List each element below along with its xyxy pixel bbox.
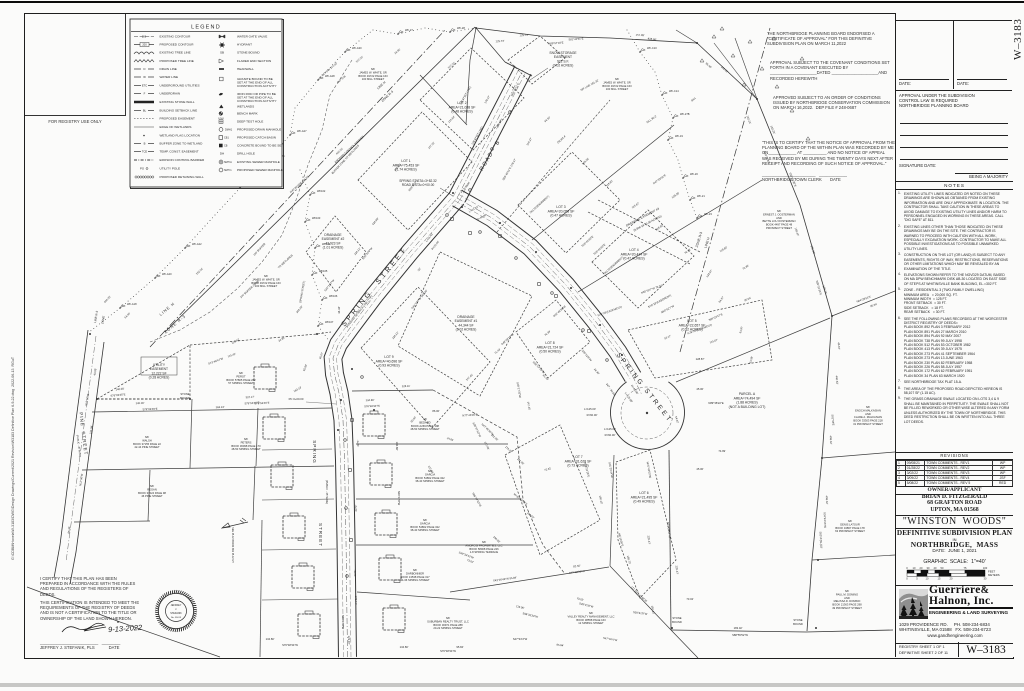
- svg-text:132.04': 132.04': [88, 425, 93, 435]
- svg-text:S03°43'03"W: S03°43'03"W: [823, 512, 828, 528]
- svg-text:5: 5: [916, 576, 918, 580]
- svg-text:CB1: CB1: [224, 137, 229, 140]
- svg-text:S05°45'33"E: S05°45'33"E: [592, 243, 606, 256]
- svg-text:DRAIN LINE: DRAIN LINE: [160, 67, 177, 71]
- svg-text:163.13': 163.13': [216, 405, 225, 409]
- svg-text:N/FJAMES W. WHITE, SRBOOK 4972: N/FJAMES W. WHITE, SRBOOK 49722 PAGE 163…: [358, 67, 388, 81]
- svg-text:0: 0: [906, 566, 908, 570]
- svg-text:218.12': 218.12': [353, 246, 362, 256]
- svg-text:30.00': 30.00': [409, 415, 417, 423]
- svg-text:STONE BOUND: STONE BOUND: [237, 51, 260, 55]
- svg-text:168.73': 168.73': [626, 555, 632, 565]
- svg-text:LINE H: LINE H: [158, 301, 176, 317]
- svg-text:DRAINAGEEASEMENT #243,923 SF(1: DRAINAGEEASEMENT #243,923 SF(1.01 ACRES): [322, 233, 345, 250]
- svg-text:107.02': 107.02': [427, 140, 436, 149]
- svg-text:53.17': 53.17': [663, 334, 672, 341]
- svg-text:EROSION CONTROL BARRIER: EROSION CONTROL BARRIER: [160, 158, 206, 162]
- svg-text:N/FDARBONNIERBOOK 13538 PAGE 3: N/FDARBONNIERBOOK 13538 PAGE 31734-36 SP…: [400, 568, 430, 582]
- svg-text:EXISTING CONTOUR: EXISTING CONTOUR: [160, 35, 192, 39]
- svg-text:125.73': 125.73': [519, 33, 528, 38]
- svg-text:S76°48'34"W: S76°48'34"W: [282, 643, 298, 647]
- svg-text:WF-23: WF-23: [704, 212, 712, 216]
- svg-text:WETLANDS: WETLANDS: [237, 105, 254, 109]
- svg-text:WF105: WF105: [319, 269, 328, 273]
- svg-text:55.00': 55.00': [302, 363, 308, 372]
- svg-text:100' BUFFER ZONE: 100' BUFFER ZONE: [239, 279, 260, 299]
- svg-text:S01°58'E: S01°58'E: [831, 414, 836, 426]
- svg-text:54.97': 54.97': [738, 325, 744, 333]
- svg-text:50: 50: [941, 566, 944, 570]
- svg-text:N47°29'34"E: N47°29'34"E: [652, 173, 667, 185]
- svg-text:400.00': 400.00': [103, 294, 112, 303]
- svg-text:D: D: [144, 67, 146, 71]
- svg-text:DH: DH: [220, 152, 224, 156]
- svg-text:45.00': 45.00': [696, 467, 704, 471]
- svg-text:SB: SB: [220, 51, 224, 55]
- svg-text:S05°40'11"E 178.47': S05°40'11"E 178.47': [501, 158, 517, 182]
- svg-text:ROAD 'B': ROAD 'B': [479, 137, 504, 172]
- svg-text:109.28': 109.28': [581, 157, 591, 166]
- svg-text:73.02': 73.02': [576, 596, 584, 602]
- svg-text:134.80': 134.80': [266, 637, 275, 641]
- svg-text:S89°23'57"E: S89°23'57"E: [708, 312, 724, 322]
- svg-text:R=60.00': R=60.00': [605, 433, 616, 437]
- svg-text:-2+00: -2+00: [354, 505, 358, 512]
- svg-text:S77°48'00"W: S77°48'00"W: [569, 569, 586, 575]
- svg-text:S47°34'4"W: S47°34'4"W: [603, 636, 618, 643]
- svg-text:S10°22'8"E: S10°22'8"E: [763, 151, 771, 165]
- svg-text:34.34': 34.34': [337, 306, 341, 314]
- svg-text:N65°52'7"W: N65°52'7"W: [660, 304, 675, 315]
- svg-text:S09°17'33"W: S09°17'33"W: [532, 360, 546, 375]
- svg-text:147.45': 147.45': [465, 373, 475, 382]
- svg-text:N/FREGANBOOK 37024 PAGE 9846 P: N/FREGANBOOK 37024 PAGE 9846 PINE STREET: [138, 484, 166, 498]
- svg-text:96.48': 96.48': [67, 526, 72, 534]
- svg-text:S09°17'33"W: S09°17'33"W: [516, 382, 523, 399]
- svg-text:S00°24'9"W: S00°24'9"W: [341, 615, 345, 630]
- svg-text:BENCH MARK: BENCH MARK: [237, 112, 259, 116]
- svg-text:S03°A'(SL)03': S03°A'(SL)03': [819, 531, 824, 548]
- svg-text:WF-A22: WF-A22: [192, 242, 202, 246]
- svg-text:N89°57'18"E: N89°57'18"E: [548, 40, 564, 45]
- svg-text:WF-C14: WF-C14: [669, 89, 679, 93]
- svg-text:137.48': 137.48': [483, 441, 491, 451]
- svg-text:WF-A27: WF-A27: [297, 129, 307, 133]
- svg-text:N/F LINE 181.32': N/F LINE 181.32': [580, 78, 600, 92]
- svg-text:160.10': 160.10': [598, 495, 604, 505]
- svg-text:128.11': 128.11': [402, 384, 411, 388]
- svg-text:PROPOSED EASEMENT: PROPOSED EASEMENT: [160, 117, 196, 121]
- svg-text:N/FSUBURBAN REALTY TRUST, LLCB: N/FSUBURBAN REALTY TRUST, LLCBOOK 30971 …: [427, 616, 469, 630]
- svg-text:102.23': 102.23': [746, 115, 753, 125]
- svg-text:WF-21: WF-21: [697, 194, 705, 198]
- svg-text:71.43': 71.43': [493, 347, 501, 355]
- svg-text:231.96': 231.96': [810, 245, 817, 255]
- svg-text:S05°16'33"E: S05°16'33"E: [815, 280, 823, 296]
- svg-text:WF-A28: WF-A28: [325, 74, 335, 78]
- svg-text:WF-27: WF-27: [405, 28, 413, 32]
- svg-text:408.32': 408.32': [825, 495, 829, 504]
- svg-text:24.81': 24.81': [277, 335, 286, 342]
- svg-text:JEFFREY: JEFFREY: [171, 604, 182, 607]
- svg-text:30: 30: [984, 576, 987, 580]
- svg-text:M=5°43'50"W: M=5°43'50"W: [646, 461, 653, 478]
- svg-text:100.88': 100.88': [395, 442, 399, 451]
- svg-text:WETLAND FLAG LOCATION: WETLAND FLAG LOCATION: [160, 134, 201, 138]
- svg-text:S01°20'44"W: S01°20'44"W: [666, 522, 672, 539]
- svg-text:S73°48'47"W: S73°48'47"W: [208, 356, 225, 365]
- svg-text:94.97': 94.97': [717, 295, 725, 304]
- svg-text:S78°18'(EASEMENT): S78°18'(EASEMENT): [597, 305, 623, 318]
- svg-text:L=125.00': L=125.00': [584, 407, 596, 411]
- svg-text:STREET: STREET: [318, 523, 323, 547]
- svg-text:SPRING STREET: SPRING STREET: [341, 246, 410, 328]
- svg-text:200: 200: [142, 43, 147, 47]
- svg-text:181.96': 181.96': [516, 457, 525, 466]
- svg-text:UNDERGROUND UTILITIES: UNDERGROUND UTILITIES: [160, 84, 200, 88]
- svg-text:N/FGARCIABOOK 54862 PAGE 32238: N/FGARCIABOOK 54862 PAGE 32238-40 SPRING…: [410, 518, 440, 532]
- svg-text:163.13': 163.13': [293, 385, 303, 393]
- svg-text:S88°55'52"W: S88°55'52"W: [732, 633, 748, 637]
- svg-text:LOT 9AREA=40,696 SF(0.93 ACRES: LOT 9AREA=40,696 SF(0.93 ACRES): [376, 355, 403, 368]
- svg-text:347' - 36.06': 347' - 36.06': [605, 382, 617, 397]
- svg-text:73.02': 73.02': [686, 597, 694, 601]
- svg-text:N/FENOCH MALKASIANANDCLARE A.: N/FENOCH MALKASIANANDCLARE A. MALKASIANB…: [853, 405, 883, 426]
- svg-text:10: 10: [913, 566, 916, 570]
- svg-text:FLARED END SECTION: FLARED END SECTION: [237, 59, 271, 63]
- svg-text:109.28': 109.28': [671, 191, 681, 200]
- svg-text:DRAINAGEEASEMENT #144,344 SF(1: DRAINAGEEASEMENT #144,344 SF(1.02 ACRES): [455, 315, 478, 332]
- svg-text:WATER LINE: WATER LINE: [160, 75, 179, 79]
- svg-text:46.67': 46.67': [837, 342, 842, 350]
- svg-text:DTH1: DTH1: [218, 118, 224, 120]
- svg-text:S39°41'8"W: S39°41'8"W: [579, 601, 594, 608]
- svg-text:N84°28'53"E: N84°28'53"E: [856, 295, 872, 304]
- svg-text:S00°24'9"W: S00°24'9"W: [397, 491, 401, 506]
- svg-text:BUFFER ZONE TO WETLANDS: BUFFER ZONE TO WETLANDS: [330, 144, 360, 175]
- svg-text:WF106: WF106: [329, 294, 338, 298]
- svg-text:S18°50'W: S18°50'W: [84, 393, 90, 406]
- svg-text:WF-28: WF-28: [457, 26, 465, 30]
- svg-text:UTILITYEASEMENT12,222 SF(0.28: UTILITYEASEMENT12,222 SF(0.28 ACRES): [149, 363, 170, 380]
- svg-text:SILL: SILL: [690, 96, 697, 103]
- svg-text:10: 10: [926, 576, 929, 580]
- svg-text:J.: J.: [175, 608, 177, 611]
- svg-text:-1+00: -1+00: [356, 440, 360, 447]
- svg-text:418.98': 418.98': [371, 216, 380, 226]
- svg-text:SPRING STREET: SPRING STREET: [615, 352, 674, 425]
- svg-text:EROSION CONTROL BARRIER: EROSION CONTROL BARRIER: [334, 135, 365, 164]
- svg-text:PROPOSED SEWER MANHOLE: PROPOSED SEWER MANHOLE: [237, 168, 283, 172]
- svg-text:S47°34'4"W: S47°34'4"W: [513, 637, 528, 641]
- svg-text:BUILDING SETBACK LINE: BUILDING SETBACK LINE: [160, 109, 198, 113]
- svg-text:120.84': 120.84': [447, 114, 456, 123]
- svg-text:30': 30': [417, 266, 423, 272]
- svg-text:40: 40: [934, 566, 937, 570]
- svg-text:307.17': 307.17': [245, 395, 254, 400]
- svg-text:20: 20: [950, 576, 953, 580]
- svg-text:HEADWALL: HEADWALL: [237, 67, 254, 71]
- svg-text:128.87'(ST LINE): 128.87'(ST LINE): [470, 125, 484, 145]
- svg-text:110.27': 110.27': [495, 118, 503, 128]
- svg-text:119.96': 119.96': [516, 604, 526, 610]
- svg-text:(PUBLIC - 45' WIDE): (PUBLIC - 45' WIDE): [325, 480, 329, 504]
- svg-text:115.67': 115.67': [709, 338, 719, 345]
- svg-text:N/FDENIS LATOURBOOK 34867 PAGE: N/FDENIS LATOURBOOK 34867 PAGE 17863 PRO…: [835, 519, 865, 533]
- svg-text:S79°03'46"E: S79°03'46"E: [110, 392, 126, 398]
- svg-text:BOUND: BOUND: [793, 622, 803, 626]
- svg-text:328°52'8"W: 328°52'8"W: [581, 349, 593, 363]
- svg-text:132.04': 132.04': [195, 267, 205, 276]
- svg-text:LINE H: LINE H: [704, 236, 711, 248]
- svg-text:ZONE R-3: ZONE R-3: [695, 231, 703, 247]
- svg-text:218.12': 218.12': [391, 330, 400, 340]
- svg-text:LOT 8AREA=21,724 SF(0.50 ACRES: LOT 8AREA=21,724 SF(0.50 ACRES): [537, 341, 564, 354]
- svg-text:SPRING: SPRING: [312, 440, 317, 464]
- svg-text:183.02': 183.02': [734, 626, 743, 630]
- svg-text:DMH1: DMH1: [225, 129, 233, 132]
- svg-text:176.44': 176.44': [354, 596, 358, 605]
- svg-text:34.34': 34.34': [593, 367, 601, 375]
- svg-text:TEMP. CONST. EASEMENT: TEMP. CONST. EASEMENT: [160, 150, 199, 154]
- svg-text:N/FWALSHBOOK 37155 PAGE 2242-4: N/FWALSHBOOK 37155 PAGE 2242-44 PINE STR…: [133, 435, 161, 449]
- svg-text:436.86': 436.86': [648, 36, 658, 41]
- svg-text:N89°38'22"E: N89°38'22"E: [708, 401, 723, 405]
- svg-text:BOUND: BOUND: [180, 396, 190, 400]
- svg-text:SMH A: SMH A: [224, 161, 232, 164]
- svg-text:N12°30'W: N12°30'W: [78, 473, 84, 486]
- svg-text:R=60.00': R=60.00': [587, 413, 598, 417]
- svg-text:S43°26'44"W 95.84': S43°26'44"W 95.84': [493, 575, 518, 582]
- svg-text:UNDERDRAIN: UNDERDRAIN: [160, 92, 181, 96]
- svg-text:S48°28'18"W: S48°28'18"W: [500, 332, 515, 346]
- svg-text:WF-19: WF-19: [675, 134, 683, 138]
- svg-text:95.94': 95.94': [870, 302, 879, 308]
- svg-text:LOT 4AREA=20,414 SF(0.47 ACRES: LOT 4AREA=20,414 SF(0.47 ACRES): [621, 248, 648, 261]
- svg-text:WF-A30: WF-A30: [352, 46, 362, 50]
- svg-text:S79°53'46"E: S79°53'46"E: [254, 401, 269, 406]
- svg-text:95.04': 95.04': [743, 296, 752, 303]
- svg-text:N47°42'48"W: N47°42'48"W: [633, 590, 648, 604]
- svg-text:220.47': 220.47': [674, 565, 679, 575]
- svg-text:160.10': 160.10': [650, 605, 656, 615]
- svg-text:PC 0+00.00: PC 0+00.00: [289, 397, 304, 401]
- svg-text:L=21.62': L=21.62': [468, 205, 479, 214]
- svg-text:PROPOSED DRAIN MANHOLE: PROPOSED DRAIN MANHOLE: [237, 128, 281, 132]
- svg-text:157.09': 157.09': [636, 33, 645, 37]
- svg-text:115.42': 115.42': [231, 337, 241, 345]
- svg-text:73.02': 73.02': [466, 558, 475, 564]
- svg-text:SPRING ST STA=3+82.32ROAD B ST: SPRING ST STA=3+82.32ROAD B STA=0+00.00: [399, 179, 437, 187]
- svg-text:-3+00: -3+00: [353, 570, 357, 577]
- svg-text:100: 100: [983, 566, 988, 570]
- svg-text:WF-20: WF-20: [690, 172, 698, 176]
- svg-text:SMH 1: SMH 1: [224, 169, 232, 172]
- svg-text:STEFANIK: STEFANIK: [170, 612, 182, 615]
- svg-text:206: 206: [142, 35, 147, 39]
- svg-text:W: W: [143, 75, 146, 79]
- svg-text:46.67': 46.67': [318, 351, 324, 360]
- svg-text:UTILITY POLE: UTILITY POLE: [160, 167, 181, 171]
- svg-text:408.32': 408.32': [829, 435, 833, 444]
- svg-text:S78°48'34"W: S78°48'34"W: [364, 404, 380, 409]
- svg-text:261.55'(EASEMENT): 261.55'(EASEMENT): [603, 255, 625, 275]
- svg-text:S41°23'7"W: S41°23'7"W: [323, 278, 335, 292]
- svg-text:0: 0: [906, 576, 908, 580]
- svg-text:86.00': 86.00': [432, 409, 440, 413]
- svg-text:24.81': 24.81': [446, 436, 455, 442]
- svg-text:N77°46'00"E: N77°46'00"E: [462, 412, 478, 417]
- svg-text:(SL)63.4': (SL)63.4': [556, 134, 567, 145]
- svg-text:118.80': 118.80': [655, 223, 665, 231]
- svg-text:95.84': 95.84': [456, 645, 464, 649]
- svg-text:WF107: WF107: [325, 320, 334, 324]
- svg-text:No. 55013: No. 55013: [171, 617, 182, 619]
- svg-text:SEE PLAN BOOK 891 PLAN 27: SEE PLAN BOOK 891 PLAN 27: [231, 527, 234, 563]
- svg-text:107.00': 107.00': [355, 55, 365, 64]
- svg-text:N/FPAUL M. DOMINOANDMELISSA D.: N/FPAUL M. DOMINOANDMELISSA D. DOMINOBOO…: [832, 589, 862, 610]
- svg-text:STONE: STONE: [793, 618, 802, 622]
- svg-text:125.73': 125.73': [495, 39, 504, 44]
- svg-text:440.63': 440.63': [835, 375, 840, 385]
- svg-text:ZONE R-3: ZONE R-3: [163, 313, 187, 334]
- svg-text:BL: BL: [143, 109, 147, 113]
- svg-text:LINE R-3: LINE R-3: [93, 310, 99, 323]
- svg-text:24.81': 24.81': [393, 47, 401, 55]
- svg-text:PT 3+55.67: PT 3+55.67: [459, 180, 471, 193]
- svg-text:N6°10'26"E: N6°10'26"E: [617, 533, 624, 548]
- svg-text:110.27': 110.27': [525, 136, 533, 146]
- svg-text:30: 30: [927, 566, 930, 570]
- svg-text:54.97': 54.97': [674, 416, 680, 424]
- svg-text:WF-C10: WF-C10: [647, 46, 657, 50]
- svg-text:L=125.00': L=125.00': [604, 427, 616, 431]
- svg-text:TO WETLANDS: TO WETLANDS: [277, 253, 294, 269]
- svg-text:N/FJAMES W. WHITE, SRBOOK 4972: N/FJAMES W. WHITE, SRBOOK 49722 PAGE 163…: [602, 77, 632, 91]
- svg-text:CONCRETE BOUND TO BE SET: CONCRETE BOUND TO BE SET: [237, 144, 283, 148]
- svg-text:WF-A20: WF-A20: [162, 272, 172, 276]
- svg-text:76.39': 76.39': [543, 329, 551, 337]
- svg-text:WF-A18: WF-A18: [127, 302, 137, 306]
- svg-text:(SPRING STREET): (SPRING STREET): [298, 280, 306, 303]
- svg-text:133.07': 133.07': [705, 268, 714, 278]
- svg-text:EXISTING STONE WALL: EXISTING STONE WALL: [160, 100, 195, 104]
- svg-text:147.45': 147.45': [526, 401, 532, 411]
- svg-text:ZONE: ZONE: [100, 315, 105, 324]
- svg-text:72.61': 72.61': [544, 466, 553, 472]
- svg-text:129.24': 129.24': [822, 285, 829, 295]
- svg-text:SNOW STORAGEEASEMENT932 S.F.(0: SNOW STORAGEEASEMENT932 S.F.(0.02 ACRES): [549, 51, 577, 68]
- svg-text:100.03': 100.03': [492, 535, 501, 544]
- svg-text:HYDRANT: HYDRANT: [237, 43, 252, 47]
- svg-text:S76°48'34"W: S76°48'34"W: [440, 649, 456, 653]
- svg-text:96.48': 96.48': [705, 61, 713, 69]
- svg-text:PROPOSED RETAINING WALL: PROPOSED RETAINING WALL: [160, 175, 204, 179]
- svg-text:S39°41'8"W: S39°41'8"W: [633, 610, 648, 616]
- svg-text:118.80': 118.80': [719, 245, 729, 253]
- svg-text:BOUND: BOUND: [672, 620, 682, 624]
- svg-text:N16°10'26"E: N16°10'26"E: [583, 462, 591, 478]
- svg-text:134.80': 134.80': [366, 398, 375, 402]
- svg-text:123.07': 123.07': [347, 636, 351, 645]
- svg-text:74.99': 74.99': [718, 449, 726, 453]
- svg-text:148.42': 148.42': [794, 227, 801, 237]
- svg-text:L=125.00': L=125.00': [624, 391, 634, 403]
- svg-text:134.80': 134.80': [400, 645, 409, 649]
- svg-text:PARCEL AAREA=74,494 SF(1.88 AC: PARCEL AAREA=74,494 SF(1.88 ACRES)(NOT A…: [729, 392, 766, 409]
- svg-text:54.00': 54.00': [123, 311, 131, 319]
- svg-text:76.39': 76.39': [683, 247, 692, 255]
- svg-text:BUFFER ZONE TO WETLAND: BUFFER ZONE TO WETLAND: [160, 142, 204, 146]
- svg-text:PROPOSED CONTOUR: PROPOSED CONTOUR: [160, 43, 195, 47]
- svg-text:163.26': 163.26': [295, 304, 304, 314]
- svg-text:LOT 6AREA=21,495 SF(0.49 ACRES: LOT 6AREA=21,495 SF(0.49 ACRES): [631, 491, 658, 504]
- svg-text:S41°23'7"W 163.26': S41°23'7"W 163.26': [410, 288, 428, 309]
- svg-text:DRILL HOLE: DRILL HOLE: [237, 152, 255, 156]
- svg-text:B: B: [144, 142, 146, 146]
- svg-text:WF-27B: WF-27B: [680, 112, 690, 116]
- svg-text:METERS: METERS: [988, 573, 1000, 577]
- svg-text:CONSTRUCTION ACTIVITY: CONSTRUCTION ACTIVITY: [237, 84, 277, 88]
- svg-text:CONSTRUCTION ACTIVITY: CONSTRUCTION ACTIVITY: [237, 99, 277, 103]
- svg-text:181.96': 181.96': [490, 433, 499, 442]
- svg-text:N/FVALLEY REALTY MANAGEMENT, L: N/FVALLEY REALTY MANAGEMENT, LLCBOOK 385…: [568, 611, 615, 625]
- svg-text:DEEP TEST HOLE: DEEP TEST HOLE: [237, 120, 263, 124]
- svg-text:STONE: STONE: [672, 616, 681, 620]
- svg-text:220.47': 220.47': [646, 535, 651, 545]
- svg-text:N45°36'03"E 116.96': N45°36'03"E 116.96': [289, 174, 310, 194]
- svg-text:S48°32'20"W: S48°32'20"W: [522, 611, 539, 619]
- svg-text:PROPOSED TREE LINE: PROPOSED TREE LINE: [160, 59, 194, 63]
- svg-text:N/FPEROTBOOK 57805 PAGE 26257: N/FPEROTBOOK 57805 PAGE 26257 SPRING STR…: [226, 371, 256, 385]
- svg-text:LEGEND: LEGEND: [191, 25, 221, 31]
- svg-text:TCE: TCE: [142, 150, 148, 154]
- svg-text:N/FERNEST J. OOSTERMANANDBETTE: N/FERNEST J. OOSTERMANANDBETTE LOU OOSTE…: [762, 209, 795, 230]
- svg-text:N65°52'7"W 79.24': N65°52'7"W 79.24': [640, 283, 663, 295]
- svg-text:128.87': 128.87': [696, 357, 705, 361]
- svg-text:WATER GATE VALVE: WATER GATE VALVE: [237, 35, 267, 39]
- svg-text:140.00': 140.00': [115, 387, 125, 392]
- svg-text:34.59': 34.59': [748, 355, 754, 363]
- svg-text:43.05': 43.05': [92, 367, 97, 375]
- svg-text:EDGE OF WETLANDS: EDGE OF WETLANDS: [160, 125, 192, 129]
- svg-text:178.47': 178.47': [483, 94, 491, 104]
- svg-text:115.67': 115.67': [631, 201, 641, 209]
- svg-text:(PUBLIC - 45' WIDE): (PUBLIC - 45' WIDE): [76, 435, 82, 458]
- svg-text:95.84': 95.84': [556, 643, 564, 648]
- svg-text:EXISTING TREE LINE: EXISTING TREE LINE: [160, 51, 191, 55]
- svg-text:45.00': 45.00': [696, 387, 704, 391]
- svg-text:S47°5'W: S47°5'W: [336, 74, 347, 84]
- svg-text:CB: CB: [224, 145, 228, 148]
- svg-text:115.42': 115.42': [227, 352, 237, 359]
- svg-text:76.39': 76.39': [741, 263, 750, 270]
- svg-text:ETC: ETC: [142, 84, 147, 88]
- svg-text:140.00': 140.00': [136, 401, 145, 405]
- svg-text:LINE H: LINE H: [376, 80, 387, 90]
- svg-text:107.00': 107.00': [447, 61, 457, 70]
- svg-text:82.50': 82.50': [573, 563, 581, 568]
- svg-text:WF102: WF102: [317, 189, 326, 193]
- svg-text:EXISTING SEWER MANHOLE: EXISTING SEWER MANHOLE: [237, 160, 280, 164]
- svg-text:LOT 3AREA=20,058 SF(0.47 ACRES: LOT 3AREA=20,058 SF(0.47 ACRES): [548, 205, 575, 218]
- svg-text:PROPOSED CATCH BASIN: PROPOSED CATCH BASIN: [237, 136, 276, 140]
- svg-text:75: 75: [964, 566, 967, 570]
- svg-text:SILL 96.2': SILL 96.2': [645, 114, 657, 124]
- svg-text:S05°37'53"W: S05°37'53"W: [471, 492, 483, 508]
- svg-text:15: 15: [938, 576, 941, 580]
- svg-text:WF103: WF103: [312, 216, 321, 220]
